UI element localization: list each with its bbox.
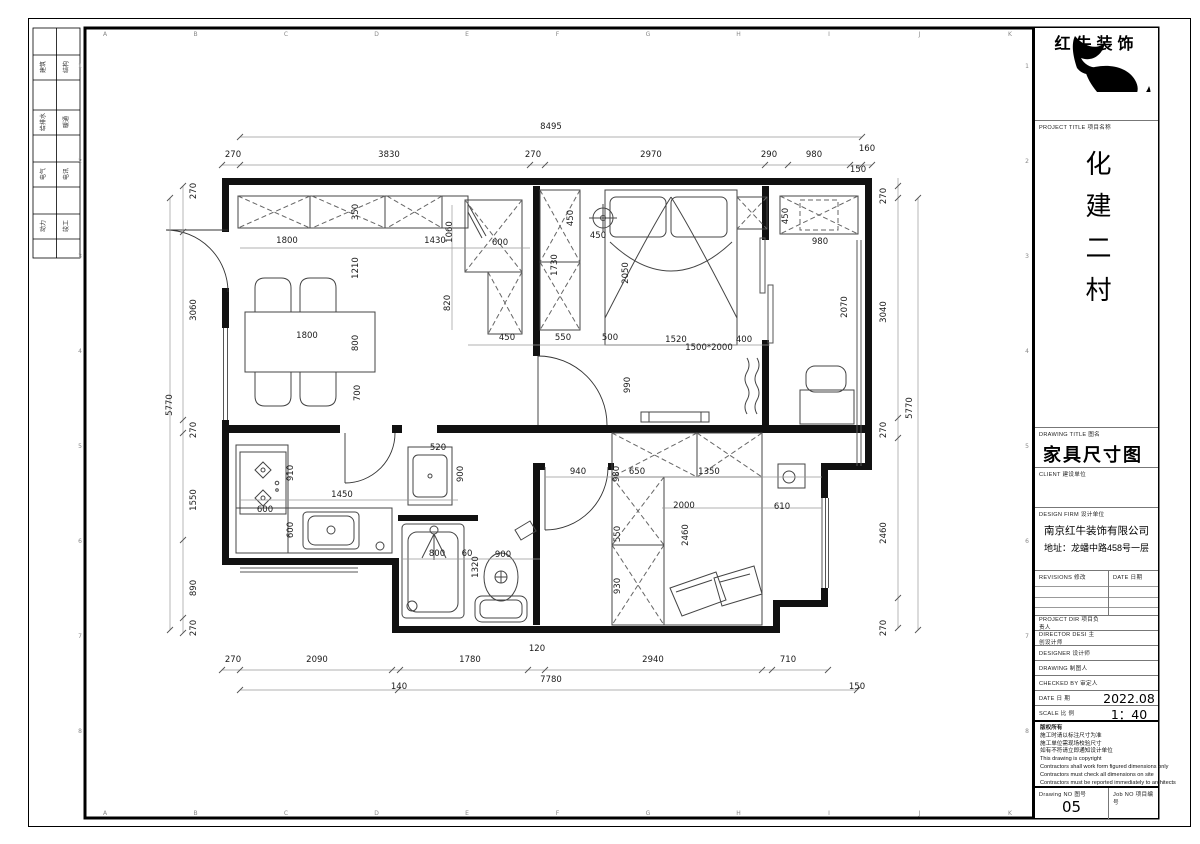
- designer-label: DESIGNER 设计师: [1035, 649, 1100, 657]
- svg-text:600: 600: [286, 522, 296, 538]
- stamp-table-labels: 建筑结构给排水暖通电气电讯动力竣工: [39, 61, 70, 232]
- svg-text:竣工: 竣工: [62, 220, 70, 232]
- svg-text:D: D: [374, 31, 379, 38]
- svg-text:710: 710: [780, 655, 796, 665]
- revisions-label: REVISIONS 修改: [1035, 571, 1108, 581]
- copyright-line: Contractors shall work form figured dime…: [1040, 764, 1158, 772]
- svg-text:B: B: [193, 810, 197, 817]
- kitchen-counter: [236, 445, 392, 553]
- dimension-ticks: [167, 134, 921, 693]
- svg-text:给排水: 给排水: [39, 113, 47, 131]
- drawing-sheet: 建筑结构给排水暖通电气电讯动力竣工: [0, 0, 1200, 844]
- svg-text:6: 6: [78, 538, 82, 545]
- date-col-label: DATE 日期: [1109, 571, 1158, 581]
- svg-text:900: 900: [495, 550, 511, 560]
- svg-text:C: C: [284, 810, 288, 817]
- svg-text:1320: 1320: [471, 556, 481, 578]
- toilet: [475, 553, 527, 622]
- svg-text:4: 4: [1025, 348, 1029, 355]
- svg-text:F: F: [556, 31, 560, 38]
- svg-text:2: 2: [78, 158, 82, 165]
- svg-text:450: 450: [590, 231, 606, 241]
- svg-text:2460: 2460: [879, 522, 889, 544]
- svg-text:1210: 1210: [351, 257, 361, 279]
- drawing-person-label: DRAWING 制图人: [1035, 664, 1100, 672]
- svg-text:2: 2: [1025, 158, 1029, 165]
- svg-text:930: 930: [613, 578, 623, 594]
- washbasin: [408, 447, 452, 505]
- svg-text:120: 120: [529, 644, 545, 654]
- svg-text:150: 150: [850, 165, 866, 175]
- svg-text:5: 5: [1025, 443, 1029, 450]
- svg-text:270: 270: [189, 183, 199, 199]
- svg-text:3040: 3040: [879, 301, 889, 323]
- svg-text:1350: 1350: [698, 467, 720, 477]
- client-row: CLIENT 建设单位: [1035, 467, 1158, 507]
- copyright-block: 版权所有施工时请以标注尺寸为准施工单位需现场校验尺寸如有不符请立即通知设计单位T…: [1035, 720, 1158, 786]
- svg-text:160: 160: [859, 144, 875, 154]
- svg-text:270: 270: [879, 620, 889, 636]
- svg-text:1550: 1550: [189, 489, 199, 511]
- svg-text:520: 520: [430, 443, 446, 453]
- date-label: DATE 日 期: [1035, 694, 1100, 702]
- company-name: 南京红牛装饰有限公司: [1035, 523, 1158, 538]
- svg-text:270: 270: [189, 422, 199, 438]
- project-dir-label: PROJECT DIR 项目负责人: [1035, 615, 1100, 631]
- svg-text:700: 700: [353, 385, 363, 401]
- svg-text:B: B: [193, 31, 197, 38]
- redbull-logo-icon: [1035, 30, 1161, 92]
- svg-text:890: 890: [189, 580, 199, 596]
- svg-text:900: 900: [456, 466, 466, 482]
- drawing-no-label: Drawing NO 图号: [1035, 788, 1108, 798]
- drawing-title: 家具尺寸图: [1035, 438, 1158, 467]
- entry-door: [166, 230, 228, 292]
- svg-text:2090: 2090: [306, 655, 328, 665]
- svg-text:F: F: [556, 810, 560, 817]
- svg-text:270: 270: [879, 188, 889, 204]
- svg-text:E: E: [465, 810, 469, 817]
- checked-by-label: CHECKED BY 审定人: [1035, 679, 1100, 687]
- svg-text:270: 270: [525, 150, 541, 160]
- svg-text:1520: 1520: [665, 335, 687, 345]
- svg-text:5770: 5770: [905, 397, 915, 419]
- second-bed: [664, 477, 762, 625]
- svg-text:650: 650: [629, 467, 645, 477]
- drawing-no-value: 05: [1035, 798, 1108, 816]
- svg-text:电气: 电气: [39, 168, 47, 180]
- svg-text:980: 980: [812, 237, 828, 247]
- copyright-line: This drawing is copyright: [1040, 756, 1158, 764]
- svg-text:150: 150: [849, 682, 865, 692]
- sheet-borders: [29, 19, 1191, 827]
- svg-text:1800: 1800: [276, 236, 298, 246]
- copyright-line: 施工时请以标注尺寸为准: [1040, 733, 1158, 741]
- drawing-title-label: DRAWING TITLE 图名: [1035, 428, 1158, 438]
- project-dir-row: PROJECT DIR 项目负责人: [1035, 615, 1158, 630]
- svg-text:140: 140: [391, 682, 407, 692]
- svg-text:4: 4: [78, 348, 82, 355]
- svg-text:E: E: [465, 31, 469, 38]
- company-address: 地址：龙蟠中路458号一层: [1035, 541, 1158, 554]
- project-title-row: PROJECT TITLE 项目名称: [1035, 120, 1158, 134]
- svg-text:1060: 1060: [445, 221, 455, 243]
- kitchen-sink: [303, 512, 384, 550]
- balcony-desk-chair: [800, 366, 854, 424]
- svg-text:450: 450: [781, 208, 791, 224]
- master-bedroom-door: [538, 356, 607, 425]
- svg-text:450: 450: [499, 333, 515, 343]
- svg-text:J: J: [918, 31, 921, 38]
- svg-text:1450: 1450: [331, 490, 353, 500]
- job-no-label: Job NO 项目编号: [1109, 788, 1158, 806]
- svg-text:940: 940: [570, 467, 586, 477]
- svg-text:980: 980: [806, 150, 822, 160]
- svg-text:动力: 动力: [39, 220, 47, 232]
- dimension-lines: [170, 137, 918, 690]
- scale-label: SCALE 比 例: [1035, 709, 1100, 717]
- design-firm-label: DESIGN FIRM 设计单位: [1035, 508, 1158, 518]
- svg-text:8: 8: [1025, 728, 1029, 735]
- svg-text:610: 610: [774, 502, 790, 512]
- svg-text:1500*2000: 1500*2000: [685, 343, 733, 353]
- svg-text:3: 3: [78, 253, 82, 260]
- ceiling-light-icon: [589, 204, 617, 232]
- svg-text:A: A: [103, 810, 108, 817]
- svg-text:K: K: [1008, 810, 1013, 817]
- svg-text:990: 990: [623, 377, 633, 393]
- svg-text:1430: 1430: [424, 236, 446, 246]
- svg-text:5: 5: [78, 443, 82, 450]
- svg-text:G: G: [646, 810, 651, 817]
- svg-text:550: 550: [613, 526, 623, 542]
- svg-text:350: 350: [351, 204, 361, 220]
- scale-row: SCALE 比 例 1：40: [1035, 705, 1158, 720]
- svg-text:I: I: [828, 31, 830, 38]
- svg-text:G: G: [646, 31, 651, 38]
- svg-text:7780: 7780: [540, 675, 562, 685]
- shower: [402, 524, 464, 618]
- svg-text:1: 1: [78, 63, 82, 70]
- svg-text:290: 290: [761, 150, 777, 160]
- drawing-title-row: DRAWING TITLE 图名 家具尺寸图: [1035, 427, 1158, 467]
- svg-text:电讯: 电讯: [62, 168, 70, 180]
- kitchen-door: [345, 433, 395, 483]
- revisions-table: REVISIONS 修改 DATE 日期: [1035, 570, 1158, 615]
- svg-text:400: 400: [736, 335, 752, 345]
- hall-wardrobe: [465, 200, 522, 334]
- svg-text:2460: 2460: [681, 524, 691, 546]
- title-block: 红牛装饰 PROJECT TITLE 项目名称 化建二村 DRAWING TIT…: [1032, 28, 1158, 818]
- svg-text:2970: 2970: [640, 150, 662, 160]
- svg-text:270: 270: [189, 620, 199, 636]
- svg-text:2940: 2940: [642, 655, 664, 665]
- svg-text:2050: 2050: [621, 262, 631, 284]
- svg-text:3060: 3060: [189, 299, 199, 321]
- floor-plan-canvas: 建筑结构给排水暖通电气电讯动力竣工: [0, 0, 1200, 844]
- bath-accessory: [515, 521, 536, 540]
- design-firm-row: DESIGN FIRM 设计单位 南京红牛装饰有限公司 地址：龙蟠中路458号一…: [1035, 507, 1158, 570]
- doors: [166, 230, 608, 530]
- tv-bench: [641, 412, 709, 422]
- svg-text:270: 270: [225, 655, 241, 665]
- svg-text:8: 8: [78, 728, 82, 735]
- drawing-number-row: Drawing NO 图号 05 Job NO 项目编号: [1035, 786, 1158, 820]
- svg-text:5770: 5770: [165, 394, 175, 416]
- svg-text:1: 1: [1025, 63, 1029, 70]
- svg-text:H: H: [736, 810, 741, 817]
- svg-text:D: D: [374, 810, 379, 817]
- svg-text:3830: 3830: [378, 150, 400, 160]
- svg-text:3: 3: [1025, 253, 1029, 260]
- svg-text:7: 7: [78, 633, 82, 640]
- svg-text:K: K: [1008, 31, 1013, 38]
- svg-text:7: 7: [1025, 633, 1029, 640]
- svg-text:1800: 1800: [296, 331, 318, 341]
- svg-text:结构: 结构: [62, 61, 70, 73]
- client-label: CLIENT 建设单位: [1035, 468, 1158, 478]
- svg-text:980: 980: [612, 466, 622, 482]
- director-label: DIRECTOR DESI 主创设计师: [1035, 630, 1100, 646]
- svg-text:6: 6: [1025, 538, 1029, 545]
- svg-text:2000: 2000: [673, 501, 695, 511]
- svg-text:820: 820: [443, 295, 453, 311]
- director-row: DIRECTOR DESI 主创设计师: [1035, 630, 1158, 645]
- checked-by-row: CHECKED BY 审定人: [1035, 675, 1158, 690]
- svg-text:600: 600: [257, 505, 273, 515]
- copyright-line: 如有不符请立即通知设计单位: [1040, 748, 1158, 756]
- svg-text:H: H: [736, 31, 741, 38]
- svg-text:A: A: [103, 31, 108, 38]
- svg-text:600: 600: [492, 238, 508, 248]
- svg-text:建筑: 建筑: [39, 61, 47, 73]
- balcony-cabinet: [780, 196, 858, 234]
- designer-row: DESIGNER 设计师: [1035, 645, 1158, 660]
- washing-machine: [778, 464, 805, 488]
- svg-text:450: 450: [566, 210, 576, 226]
- svg-text:I: I: [828, 810, 830, 817]
- drawing-person-row: DRAWING 制图人: [1035, 660, 1158, 675]
- copyright-line: Contractors must check all dimensions on…: [1040, 772, 1158, 780]
- project-title-label: PROJECT TITLE 项目名称: [1035, 121, 1158, 131]
- radiator: [745, 358, 759, 414]
- svg-text:270: 270: [879, 422, 889, 438]
- svg-text:800: 800: [429, 549, 445, 559]
- svg-text:800: 800: [351, 335, 361, 351]
- svg-text:500: 500: [602, 333, 618, 343]
- svg-text:C: C: [284, 31, 288, 38]
- svg-text:270: 270: [225, 150, 241, 160]
- logo-area: 红牛装饰: [1035, 30, 1158, 120]
- svg-text:J: J: [918, 810, 921, 817]
- svg-text:1730: 1730: [550, 254, 560, 276]
- project-name-row: 化建二村: [1035, 134, 1158, 427]
- project-name: 化建二村: [1078, 150, 1115, 400]
- svg-text:暖通: 暖通: [62, 116, 70, 128]
- svg-text:910: 910: [286, 465, 296, 481]
- svg-text:1780: 1780: [459, 655, 481, 665]
- svg-text:550: 550: [555, 333, 571, 343]
- svg-text:2070: 2070: [840, 296, 850, 318]
- svg-text:8495: 8495: [540, 122, 562, 132]
- copyright-line: 版权所有: [1040, 725, 1158, 733]
